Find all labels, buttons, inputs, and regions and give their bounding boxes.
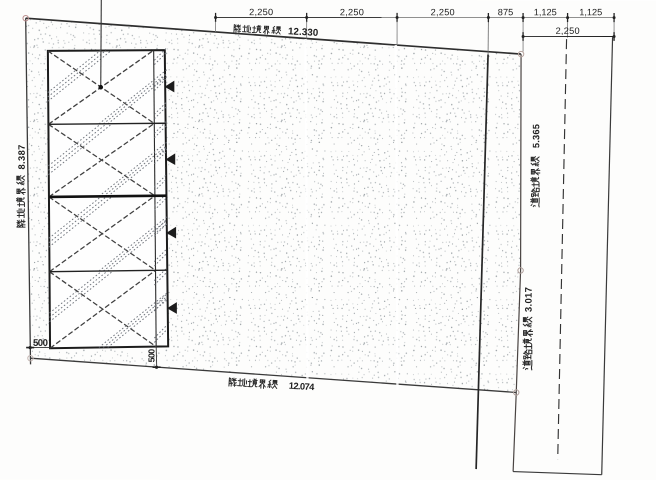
svg-text:2,250: 2,250 bbox=[431, 7, 455, 17]
svg-text:500: 500 bbox=[147, 349, 157, 363]
svg-text:5.365: 5.365 bbox=[531, 124, 541, 148]
svg-text:875: 875 bbox=[498, 7, 514, 17]
svg-text:1,125: 1,125 bbox=[579, 7, 602, 17]
svg-text:1,125: 1,125 bbox=[534, 7, 557, 17]
svg-text:2,250: 2,250 bbox=[340, 7, 364, 17]
svg-text:2,250: 2,250 bbox=[556, 26, 580, 36]
svg-text:8.387: 8.387 bbox=[17, 145, 27, 170]
svg-text:2,250: 2,250 bbox=[249, 7, 273, 17]
svg-text:12.074: 12.074 bbox=[289, 381, 316, 393]
svg-text:500: 500 bbox=[33, 338, 48, 349]
svg-text:3.017: 3.017 bbox=[524, 287, 535, 312]
svg-text:12.330: 12.330 bbox=[288, 26, 319, 39]
